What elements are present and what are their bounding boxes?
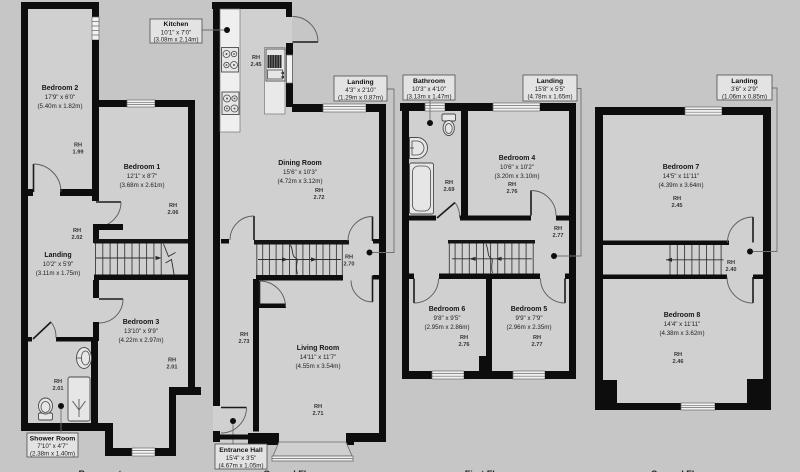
svg-text:Dining Room: Dining Room [278, 160, 322, 167]
svg-text:12'1" x 8'7": 12'1" x 8'7" [127, 173, 158, 180]
svg-text:RH: RH [345, 255, 353, 261]
svg-text:RH: RH [445, 180, 453, 186]
svg-text:2.69: 2.69 [444, 187, 455, 193]
svg-text:Bedroom 4: Bedroom 4 [499, 155, 536, 162]
svg-text:RH: RH [252, 55, 260, 61]
svg-text:Entrance Hall: Entrance Hall [219, 447, 263, 454]
svg-text:RH: RH [673, 196, 681, 202]
svg-text:Bedroom 3: Bedroom 3 [123, 319, 160, 326]
svg-text:2.02: 2.02 [72, 235, 83, 241]
svg-text:(3.13m x 1.47m): (3.13m x 1.47m) [406, 94, 451, 101]
svg-text:2.45: 2.45 [672, 203, 683, 209]
svg-text:17'9" x 6'0": 17'9" x 6'0" [45, 94, 76, 101]
svg-text:2.77: 2.77 [553, 233, 564, 239]
svg-text:Bedroom 2: Bedroom 2 [42, 85, 79, 92]
svg-text:(3.68m x 2.61m): (3.68m x 2.61m) [119, 182, 164, 189]
svg-text:2.06: 2.06 [168, 210, 179, 216]
svg-text:15'4" x 3'5": 15'4" x 3'5" [226, 455, 257, 462]
svg-text:(3.11m x 1.75m): (3.11m x 1.75m) [36, 270, 81, 277]
svg-text:Landing: Landing [731, 78, 757, 85]
svg-text:10'2" x 5'9": 10'2" x 5'9" [43, 261, 74, 268]
svg-text:RH: RH [73, 228, 81, 234]
svg-text:2.40: 2.40 [726, 267, 737, 273]
svg-text:2.77: 2.77 [532, 342, 543, 348]
svg-text:9'8" x 9'5": 9'8" x 9'5" [433, 315, 460, 322]
svg-text:RH: RH [168, 358, 176, 364]
svg-text:(4.55m x 3.54m): (4.55m x 3.54m) [295, 363, 340, 370]
svg-text:10'3" x 4'10": 10'3" x 4'10" [412, 86, 446, 93]
svg-text:13'10" x 9'9": 13'10" x 9'9" [124, 328, 158, 335]
svg-text:2.71: 2.71 [313, 411, 324, 417]
svg-text:RH: RH [727, 260, 735, 266]
svg-text:15'8" x 5'5": 15'8" x 5'5" [535, 86, 566, 93]
svg-text:2.73: 2.73 [239, 339, 250, 345]
svg-text:2.76: 2.76 [459, 342, 470, 348]
svg-text:Bedroom 1: Bedroom 1 [124, 164, 161, 171]
svg-text:RH: RH [674, 352, 682, 358]
svg-text:(4.72m x 3.12m): (4.72m x 3.12m) [277, 178, 322, 185]
svg-text:2.76: 2.76 [507, 189, 518, 195]
svg-text:RH: RH [54, 379, 62, 385]
svg-text:2.72: 2.72 [314, 195, 325, 201]
svg-text:4'3" x 2'10": 4'3" x 2'10" [345, 87, 376, 94]
svg-text:(1.06m x 0.85m): (1.06m x 0.85m) [722, 94, 767, 101]
svg-text:2.45: 2.45 [251, 62, 262, 68]
svg-text:Bathroom: Bathroom [413, 78, 445, 85]
svg-text:3'6" x 2'9": 3'6" x 2'9" [731, 86, 758, 93]
svg-text:Bedroom 5: Bedroom 5 [511, 306, 548, 313]
svg-text:2.46: 2.46 [673, 359, 684, 365]
svg-text:(3.20m x 3.10m): (3.20m x 3.10m) [494, 173, 539, 180]
svg-text:Landing: Landing [347, 79, 373, 86]
svg-text:14'4" x 11'11": 14'4" x 11'11" [664, 321, 700, 328]
svg-text:RH: RH [533, 335, 541, 341]
svg-text:RH: RH [314, 404, 322, 410]
svg-text:2.70: 2.70 [344, 262, 355, 268]
svg-text:2.01: 2.01 [167, 365, 178, 371]
svg-text:(2.95m x 2.86m): (2.95m x 2.86m) [424, 324, 469, 331]
svg-text:RH: RH [315, 188, 323, 194]
svg-text:14'11" x 11'7": 14'11" x 11'7" [300, 354, 336, 361]
svg-text:2.01: 2.01 [53, 386, 64, 392]
svg-text:(1.29m x 0.87m): (1.29m x 0.87m) [338, 95, 383, 102]
svg-text:(5.40m x 1.82m): (5.40m x 1.82m) [37, 103, 82, 110]
svg-text:(4.38m x 3.62m): (4.38m x 3.62m) [659, 330, 704, 337]
svg-text:10'6" x 10'2": 10'6" x 10'2" [500, 164, 534, 171]
svg-text:(4.78m x 1.65m): (4.78m x 1.65m) [527, 94, 572, 101]
svg-text:7'10" x 4'7": 7'10" x 4'7" [37, 443, 68, 450]
svg-text:9'9" x 7'9": 9'9" x 7'9" [515, 315, 542, 322]
svg-text:Bedroom 8: Bedroom 8 [664, 312, 701, 319]
svg-text:14'5" x 11'11": 14'5" x 11'11" [663, 173, 699, 180]
svg-text:Kitchen: Kitchen [164, 21, 189, 28]
svg-text:RH: RH [508, 182, 516, 188]
svg-text:Shower Room: Shower Room [30, 436, 76, 443]
svg-text:RH: RH [460, 335, 468, 341]
svg-text:(4.22m x 2.97m): (4.22m x 2.97m) [118, 337, 163, 344]
svg-text:Landing: Landing [44, 252, 71, 259]
svg-text:(3.08m x 2.14m): (3.08m x 2.14m) [153, 37, 198, 44]
svg-text:(4.67m x 1.05m): (4.67m x 1.05m) [218, 463, 263, 470]
svg-text:Living Room: Living Room [297, 345, 339, 352]
svg-text:RH: RH [74, 143, 82, 149]
svg-text:RH: RH [554, 226, 562, 232]
svg-text:15'6" x 10'3": 15'6" x 10'3" [283, 169, 317, 176]
svg-text:RH: RH [240, 332, 248, 338]
svg-text:(2.38m x 1.40m): (2.38m x 1.40m) [30, 451, 75, 458]
svg-text:(2.96m x 2.35m): (2.96m x 2.35m) [506, 324, 551, 331]
svg-text:Landing: Landing [537, 78, 563, 85]
svg-text:Bedroom 7: Bedroom 7 [663, 164, 700, 171]
svg-text:1.99: 1.99 [73, 150, 84, 156]
svg-text:Bedroom 6: Bedroom 6 [429, 306, 466, 313]
svg-text:(4.39m x 3.64m): (4.39m x 3.64m) [658, 182, 703, 189]
svg-text:10'1" x 7'0": 10'1" x 7'0" [161, 30, 192, 37]
svg-text:RH: RH [169, 203, 177, 209]
